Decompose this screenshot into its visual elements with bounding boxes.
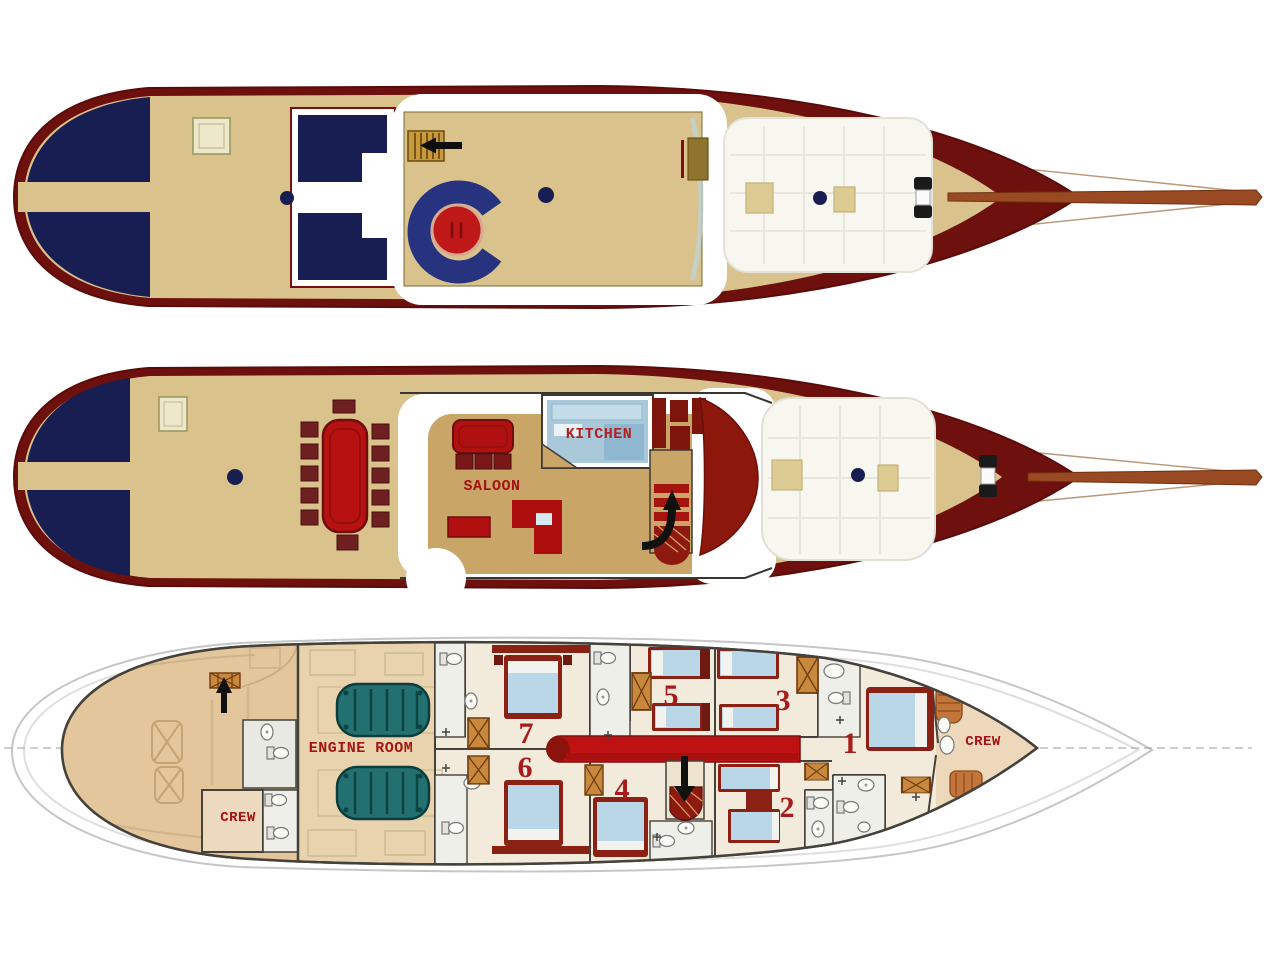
anchor-windlass xyxy=(979,455,997,497)
saloon-sofa xyxy=(453,420,513,469)
wardrobe xyxy=(632,673,651,710)
deck-hatch-small xyxy=(878,465,898,491)
aft-walkway xyxy=(18,462,132,490)
fore-sunpad xyxy=(724,118,932,272)
pillow xyxy=(508,661,558,673)
pillow xyxy=(723,708,733,727)
yacht-deck-plans-figure: SALOON KITCHEN xyxy=(0,0,1280,960)
deck-hatch-small xyxy=(746,183,773,213)
pillow xyxy=(772,812,779,840)
toilet xyxy=(807,797,829,809)
bedside-unit xyxy=(746,792,772,810)
pillow xyxy=(652,651,663,675)
kitchen-counter xyxy=(552,404,642,420)
sink xyxy=(678,822,694,834)
mizzen-mast xyxy=(227,469,243,485)
sun-deck-plan xyxy=(0,78,1280,328)
sink xyxy=(940,736,954,754)
lower-deck-plan: CREW ENGINE ROOM xyxy=(0,625,1280,887)
headboard xyxy=(492,645,590,653)
deckhouse: SALOON KITCHEN xyxy=(398,388,776,608)
cabin-5-number: 5 xyxy=(664,679,679,712)
main-mast xyxy=(538,187,554,203)
wardrobe xyxy=(468,718,489,748)
dining-chair xyxy=(337,535,358,550)
fore-mast xyxy=(813,191,827,205)
wardrobe xyxy=(585,765,603,795)
cabin-3-number: 3 xyxy=(776,684,791,717)
engine-room-label: ENGINE ROOM xyxy=(309,740,414,757)
round-table xyxy=(432,205,482,255)
cabin-6-number: 6 xyxy=(518,751,533,784)
aft-walkway xyxy=(18,182,152,212)
toilet xyxy=(837,801,859,813)
sink xyxy=(465,693,477,709)
pillow xyxy=(721,652,732,675)
lower-stairs xyxy=(666,756,704,820)
crew-fore-label: CREW xyxy=(965,734,1001,750)
deck-hatch-small xyxy=(834,187,855,212)
toilet xyxy=(267,827,289,839)
saloon-sideboard xyxy=(448,517,490,537)
sofa-cushion xyxy=(456,454,473,469)
pillow xyxy=(508,829,559,840)
sink xyxy=(812,821,824,837)
toilet xyxy=(829,692,851,704)
toilet xyxy=(442,822,464,834)
canopy-deck-area xyxy=(392,94,727,305)
canopy-door-line xyxy=(681,140,684,178)
wardrobe xyxy=(902,777,930,793)
skylight-hatch xyxy=(193,118,230,154)
sink xyxy=(261,724,273,740)
toilet xyxy=(265,794,287,806)
dining-chairs-left xyxy=(301,422,318,525)
aft-sunbathing-pads xyxy=(18,97,152,297)
cabin-2-number: 2 xyxy=(780,791,795,824)
kitchen-label: KITCHEN xyxy=(566,426,633,443)
bathroom-cabin6 xyxy=(435,775,467,864)
main-staircase xyxy=(642,450,692,565)
cabin-1-number: 1 xyxy=(843,727,858,760)
deckhouse-roof-panel xyxy=(291,108,395,287)
engine-starboard xyxy=(337,767,429,819)
cabin-7-number: 7 xyxy=(519,717,534,750)
main-deck-plan: SALOON KITCHEN xyxy=(0,358,1280,608)
deck-hatch-small xyxy=(772,460,802,490)
dining-chairs-right xyxy=(372,424,389,527)
sofa-cushion xyxy=(475,454,492,469)
toilet xyxy=(267,747,289,759)
fore-mast xyxy=(851,468,865,482)
mizzen-mast xyxy=(280,191,294,205)
crew-locker xyxy=(962,799,988,815)
sink xyxy=(858,822,870,832)
pillow xyxy=(597,841,644,850)
corridor xyxy=(546,736,800,762)
sink xyxy=(597,689,609,705)
fore-sunpad xyxy=(762,398,935,560)
engine-port xyxy=(337,684,429,736)
aft-sunbathing-pads xyxy=(18,378,132,576)
sink xyxy=(938,717,950,733)
cabin-4-number: 4 xyxy=(615,773,630,806)
anchor-windlass xyxy=(914,177,932,218)
sofa-cushion xyxy=(494,454,511,469)
dining-chair xyxy=(333,400,355,413)
saloon-label: SALOON xyxy=(463,478,520,495)
pillow xyxy=(915,693,927,747)
toilet xyxy=(440,653,462,665)
pillow xyxy=(770,767,778,789)
canopy-door xyxy=(688,138,708,180)
sink xyxy=(824,664,844,678)
saloon-floor-notch xyxy=(406,548,466,608)
footboard xyxy=(492,846,590,854)
skylight-hatch xyxy=(159,397,187,431)
wardrobe xyxy=(805,763,828,780)
kitchen-room: KITCHEN xyxy=(542,395,653,468)
crew-aft-label: CREW xyxy=(220,810,256,826)
sink xyxy=(858,779,874,791)
bar-sink xyxy=(536,513,552,525)
toilet xyxy=(594,652,616,664)
wardrobe xyxy=(468,756,489,784)
wardrobe xyxy=(797,657,818,693)
